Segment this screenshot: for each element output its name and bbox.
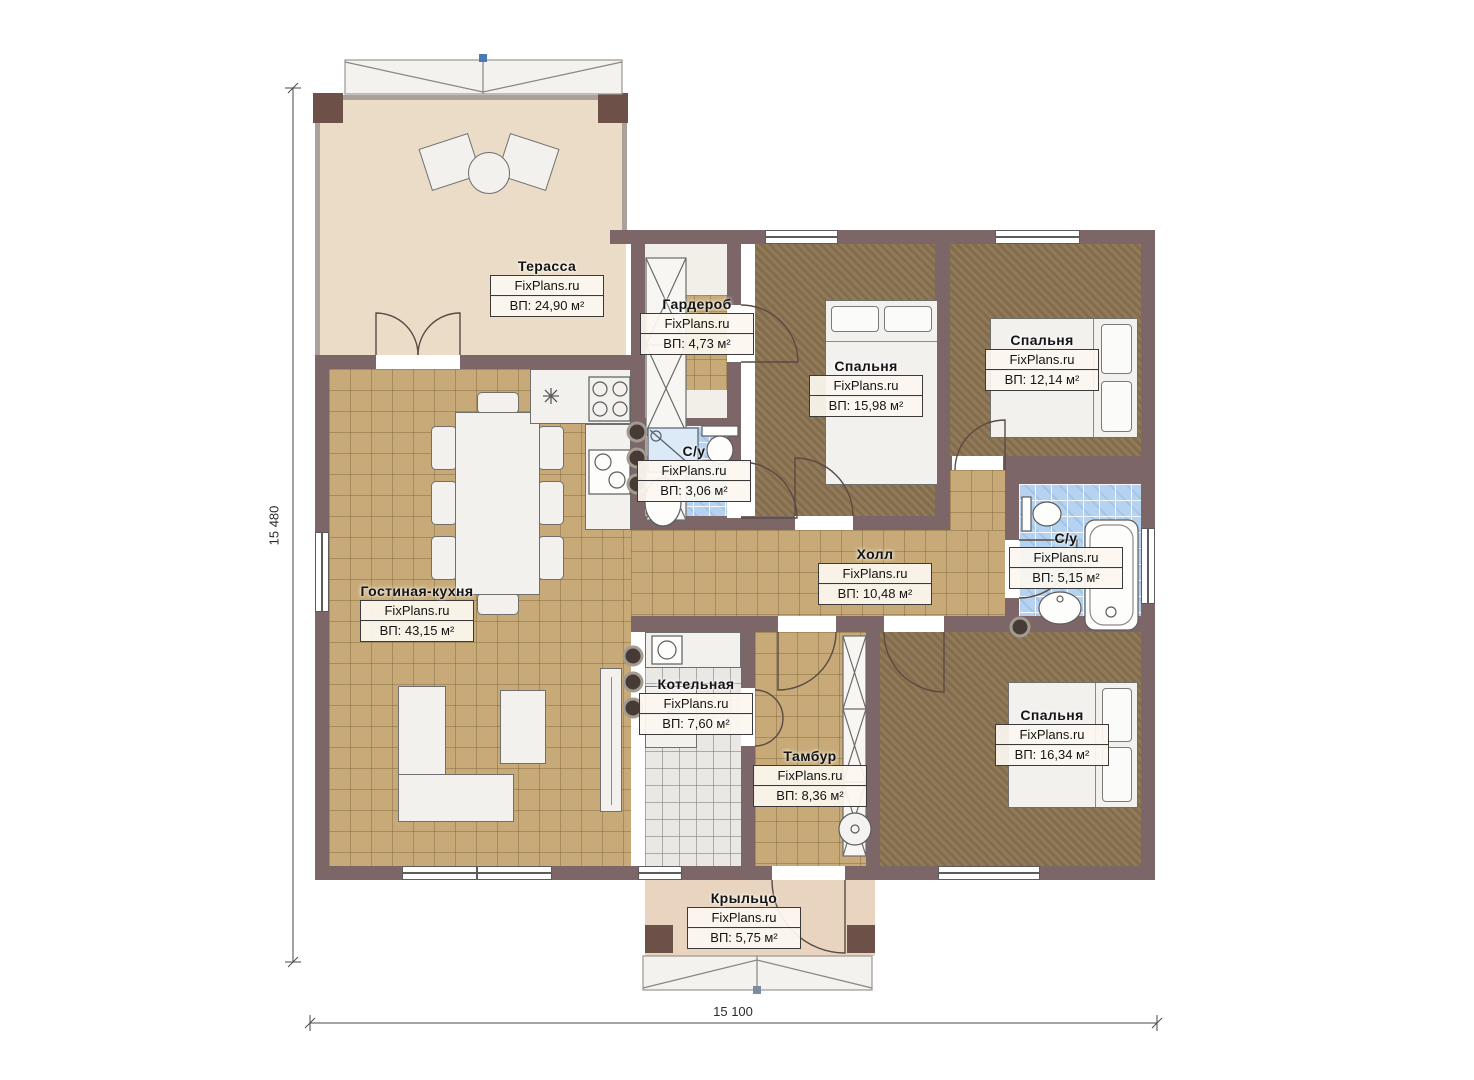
window-bedroom-right <box>995 230 1080 244</box>
room-name: Гардероб <box>640 296 754 312</box>
door-opening-terrace <box>376 355 460 369</box>
room-floor-hall-passage <box>950 470 1005 530</box>
door-opening-bedroom-right <box>952 456 1003 470</box>
porch-roof-outline <box>643 956 872 994</box>
brand-label: FixPlans.ru <box>490 275 604 297</box>
wall-terrace-house <box>315 355 645 369</box>
dining-chair <box>477 593 519 615</box>
terrace-roof-outline <box>345 54 622 94</box>
room-area: ВП: 16,34 м² <box>995 744 1109 766</box>
room-name: Спальня <box>985 332 1099 348</box>
wall-hall-top <box>631 516 950 530</box>
brand-label: FixPlans.ru <box>637 460 751 482</box>
wall-exterior-left <box>315 355 329 880</box>
porch-post-right <box>847 925 875 953</box>
dining-chair <box>538 481 564 525</box>
window-bath-big <box>1141 528 1155 604</box>
terrace-parapet-left <box>315 95 320 355</box>
terrace-post-left <box>313 93 343 123</box>
brand-label: FixPlans.ru <box>687 907 801 929</box>
room-label-bedroom-right: Спальня FixPlans.ru ВП: 12,14 м² <box>985 332 1099 391</box>
brand-label: FixPlans.ru <box>985 349 1099 371</box>
boiler-counter <box>645 632 741 668</box>
room-name: С/у <box>637 443 751 459</box>
brand-label: FixPlans.ru <box>818 563 932 585</box>
room-name: Спальня <box>995 707 1109 723</box>
room-name: Спальня <box>809 358 923 374</box>
dining-chair <box>477 392 519 414</box>
room-label-terrace: Терасса FixPlans.ru ВП: 24,90 м² <box>490 258 604 317</box>
room-area: ВП: 15,98 м² <box>809 395 923 417</box>
room-label-living: Гостиная-кухня FixPlans.ru ВП: 43,15 м² <box>360 583 474 642</box>
window-boiler <box>638 866 682 880</box>
room-label-bedroom-top: Спальня FixPlans.ru ВП: 15,98 м² <box>809 358 923 417</box>
kitchen-counter-right <box>585 424 631 530</box>
dining-chair <box>431 481 457 525</box>
room-label-boiler: Котельная FixPlans.ru ВП: 7,60 м² <box>639 676 753 735</box>
room-label-bedroom-bottom: Спальня FixPlans.ru ВП: 16,34 м² <box>995 707 1109 766</box>
room-label-porch: Крыльцо FixPlans.ru ВП: 5,75 м² <box>687 890 801 949</box>
sofa-section-horizontal <box>398 774 514 822</box>
door-opening-entry <box>772 866 845 880</box>
terrace-table <box>468 152 510 194</box>
room-name: Котельная <box>639 676 753 692</box>
room-area: ВП: 24,90 м² <box>490 295 604 317</box>
window-bedroom-bottom <box>938 866 1040 880</box>
wall-bath-big-top <box>1005 470 1141 484</box>
room-name: Крыльцо <box>687 890 801 906</box>
kitchen-counter-top <box>530 369 631 424</box>
room-name: Тамбур <box>753 748 867 764</box>
room-name: Холл <box>818 546 932 562</box>
room-name: Гостиная-кухня <box>360 583 474 599</box>
window-living-bottom-2 <box>477 866 552 880</box>
window-living-left <box>315 532 329 612</box>
window-living-bottom-1 <box>402 866 477 880</box>
door-opening-bedroom-bottom <box>884 616 944 632</box>
room-name: С/у <box>1009 530 1123 546</box>
brand-label: FixPlans.ru <box>360 600 474 622</box>
room-area: ВП: 8,36 м² <box>753 785 867 807</box>
dimension-width-label: 15 100 <box>713 1004 753 1019</box>
dining-chair <box>538 536 564 580</box>
brand-label: FixPlans.ru <box>753 765 867 787</box>
room-name: Терасса <box>490 258 604 274</box>
terrace-parapet-top <box>315 95 626 100</box>
room-label-vestibule: Тамбур FixPlans.ru ВП: 8,36 м² <box>753 748 867 807</box>
floor-plan: Ст.М <box>0 0 1474 1080</box>
brand-label: FixPlans.ru <box>995 724 1109 746</box>
window-bedroom-top <box>765 230 838 244</box>
brand-label: FixPlans.ru <box>1009 547 1123 569</box>
dimension-height-label: 15 480 <box>266 506 281 546</box>
room-label-wardrobe: Гардероб FixPlans.ru ВП: 4,73 м² <box>640 296 754 355</box>
room-label-bath-small: С/у FixPlans.ru ВП: 3,06 м² <box>637 443 751 502</box>
wall-vestibule-bedroom <box>866 632 880 866</box>
door-opening-vestibule <box>778 616 836 632</box>
room-area: ВП: 12,14 м² <box>985 369 1099 391</box>
room-label-bath-big: С/у FixPlans.ru ВП: 5,15 м² <box>1009 530 1123 589</box>
porch-post-left <box>645 925 673 953</box>
room-area: ВП: 43,15 м² <box>360 620 474 642</box>
dining-chair <box>431 536 457 580</box>
terrace-post-right <box>598 93 628 123</box>
room-label-hall: Холл FixPlans.ru ВП: 10,48 м² <box>818 546 932 605</box>
door-opening-bedroom-top <box>795 516 853 530</box>
dining-chair <box>431 426 457 470</box>
dining-chair <box>538 426 564 470</box>
room-area: ВП: 7,60 м² <box>639 713 753 735</box>
coffee-table <box>500 690 546 764</box>
room-area: ВП: 10,48 м² <box>818 583 932 605</box>
room-area: ВП: 3,06 м² <box>637 480 751 502</box>
room-area: ВП: 5,15 м² <box>1009 567 1123 589</box>
brand-label: FixPlans.ru <box>639 693 753 715</box>
room-area: ВП: 4,73 м² <box>640 333 754 355</box>
wall-wardrobe-bath <box>645 418 727 426</box>
room-area: ВП: 5,75 м² <box>687 927 801 949</box>
tv-stand <box>600 668 622 812</box>
brand-label: FixPlans.ru <box>640 313 754 335</box>
brand-label: FixPlans.ru <box>809 375 923 397</box>
dining-table <box>455 412 540 595</box>
